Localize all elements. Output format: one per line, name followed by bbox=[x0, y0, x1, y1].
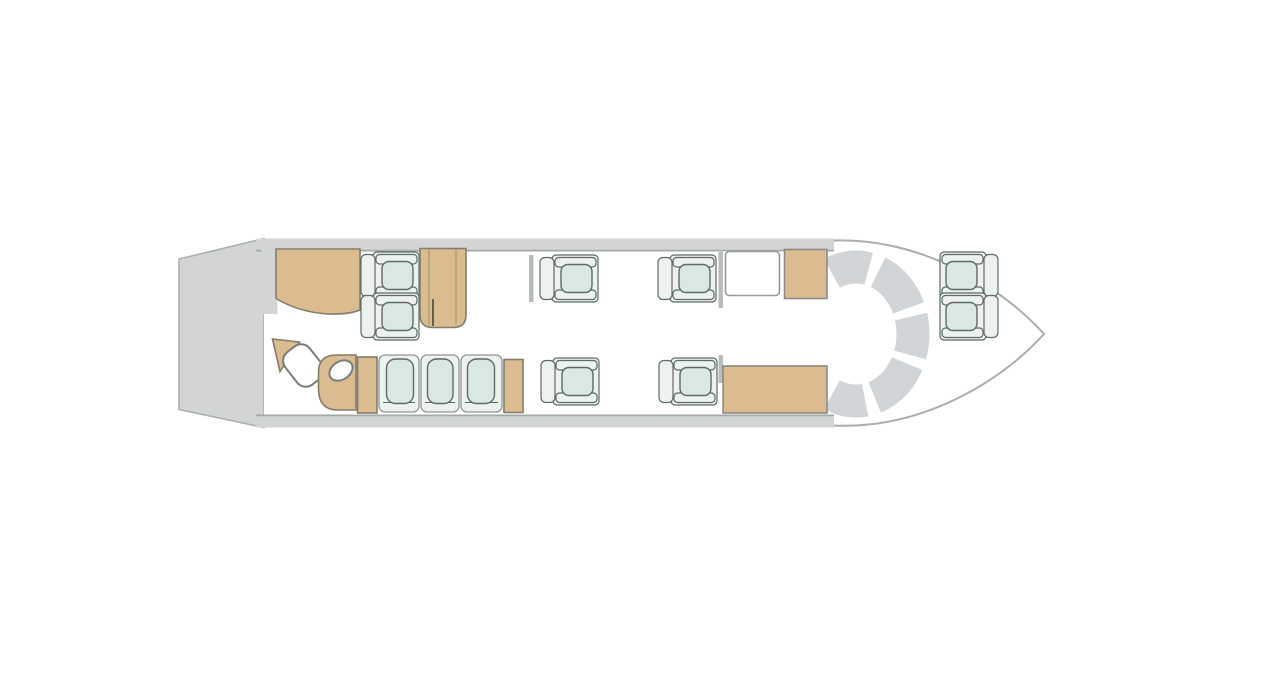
divan-end-cabinet-fwd bbox=[504, 360, 523, 413]
galley-counter bbox=[726, 252, 780, 296]
passenger-seat-club-aft-outboard bbox=[361, 252, 419, 299]
cabin-wall-bottom-edge bbox=[256, 415, 834, 417]
aft-bulkhead-extension bbox=[262, 247, 278, 314]
passenger-seat-club-fwd-inboard bbox=[940, 293, 998, 340]
passenger-seat-club-aft-inboard bbox=[361, 293, 419, 340]
partition-mid-top bbox=[529, 255, 534, 302]
tail-cone bbox=[179, 239, 264, 428]
galley-cabinet-bottom bbox=[723, 366, 827, 413]
floorplan-canvas bbox=[0, 0, 1280, 673]
galley-cabinet-top bbox=[785, 250, 828, 299]
passenger-seat-single-1 bbox=[540, 255, 598, 302]
cabin-wall-bottom bbox=[256, 415, 834, 428]
divan-seat bbox=[461, 355, 502, 412]
divan-end-cabinet-aft bbox=[358, 357, 378, 413]
passenger-seat-club-fwd-outboard bbox=[940, 252, 998, 299]
passenger-seat-single-3 bbox=[541, 358, 599, 405]
three-place-divan bbox=[358, 355, 524, 413]
divan-seat bbox=[421, 355, 459, 412]
passenger-seat-single-4 bbox=[659, 358, 717, 405]
aircraft-floorplan bbox=[0, 0, 1280, 673]
divan-seat bbox=[379, 355, 419, 412]
passenger-seat-single-2 bbox=[658, 255, 716, 302]
conference-table bbox=[420, 249, 466, 328]
cockpit-arc bbox=[832, 267, 913, 401]
wardrobe-cabinet bbox=[276, 249, 360, 314]
partition-fwd-top bbox=[719, 252, 724, 308]
